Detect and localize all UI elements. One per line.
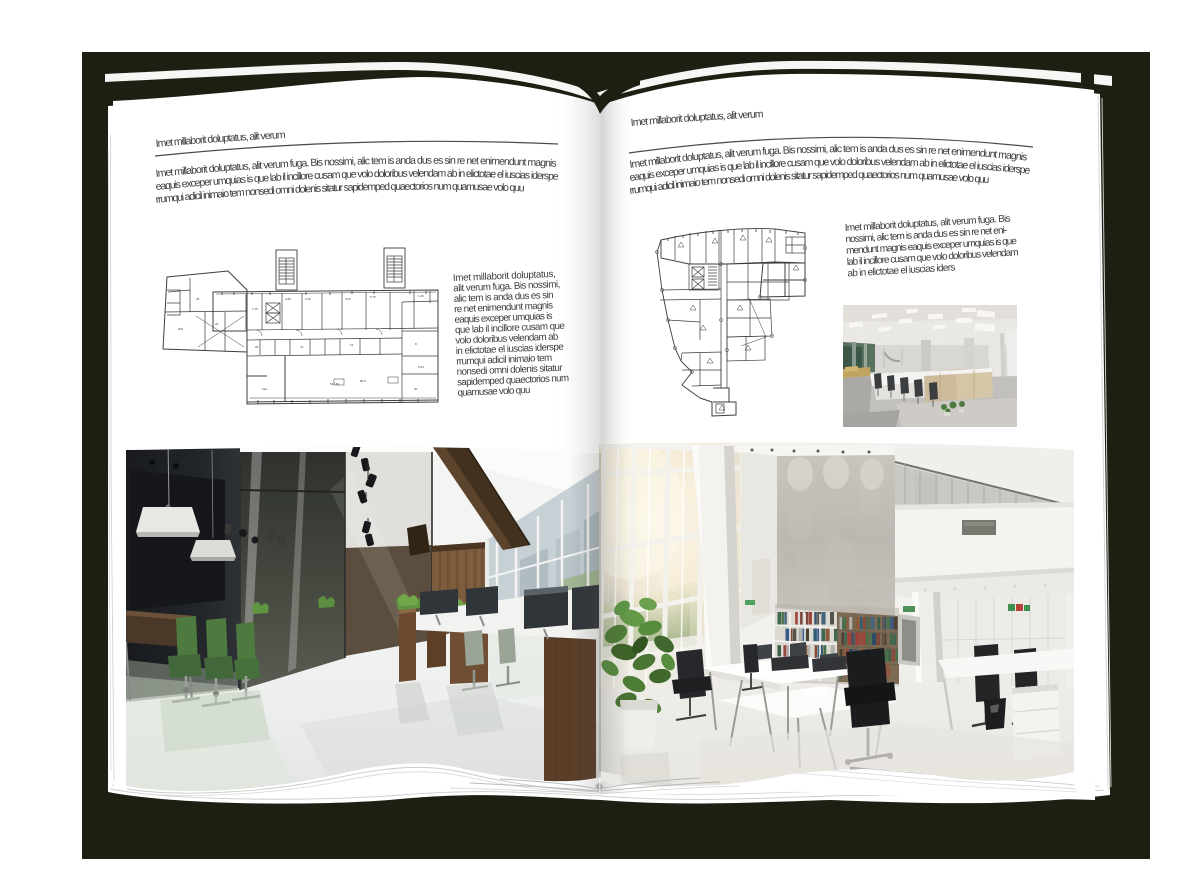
- svg-text:19: 19: [350, 343, 354, 347]
- svg-text:5.04: 5.04: [418, 365, 424, 369]
- svg-text:206: 206: [178, 327, 183, 331]
- svg-text:5.75: 5.75: [370, 295, 376, 299]
- svg-text:2.80: 2.80: [285, 297, 291, 301]
- svg-text:3.00: 3.00: [345, 297, 351, 301]
- svg-text:26: 26: [215, 322, 219, 326]
- svg-text:23a: 23a: [262, 387, 267, 391]
- svg-text:2.30: 2.30: [305, 297, 311, 301]
- svg-text:86.5: 86.5: [360, 379, 366, 383]
- svg-text:72: 72: [300, 345, 304, 349]
- svg-text:28: 28: [255, 345, 259, 349]
- svg-text:542.82: 542.82: [330, 382, 340, 386]
- svg-text:30: 30: [414, 387, 418, 391]
- svg-text:35: 35: [196, 297, 200, 301]
- svg-text:2.75: 2.75: [252, 307, 258, 311]
- svg-text:1.45: 1.45: [418, 294, 424, 298]
